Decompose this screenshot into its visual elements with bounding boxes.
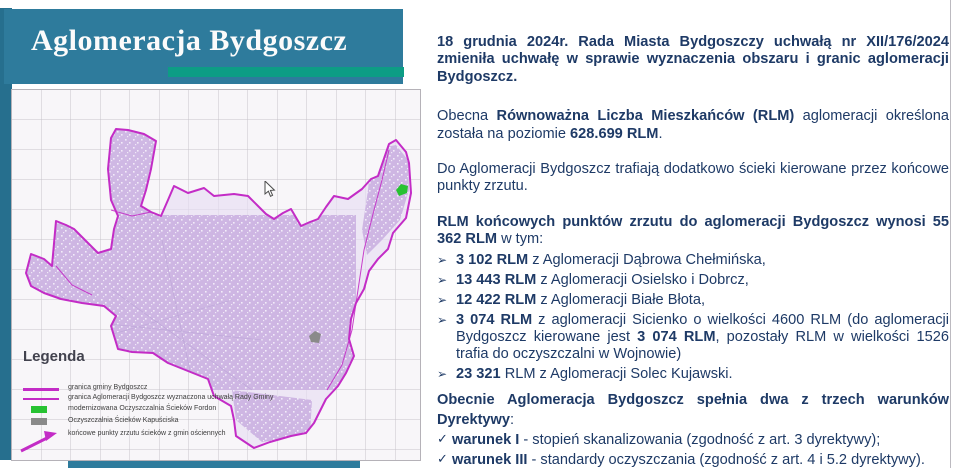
green-rect-swatch: [31, 406, 47, 413]
paragraph-rlm: Obecna Równoważna Liczba Mieszkańców (RL…: [437, 108, 949, 143]
green-accent-bar: [168, 67, 404, 77]
directive-conditions: Obecnie Aglomeracja Bydgoszcz spełnia dw…: [437, 390, 949, 468]
list-item: ➢ 3 074 RLM z aglomeracji Sicienko o wie…: [437, 312, 949, 363]
thin-line-swatch: [23, 398, 59, 400]
arrow-bullet-icon: ➢: [437, 312, 456, 363]
content-column: 18 grudnia 2024r. Rada Miasta Bydgoszczy…: [437, 0, 949, 468]
legend-title: Legenda: [23, 348, 85, 365]
gray-rect-swatch: [31, 418, 47, 425]
arrow-bullet-icon: ➢: [437, 366, 456, 383]
list-item: ➢ 13 443 RLM z Aglomeracji Osielsko i Do…: [437, 272, 949, 289]
paragraph-resolution: 18 grudnia 2024r. Rada Miasta Bydgoszczy…: [437, 34, 949, 86]
checkmark-icon: ✓: [437, 430, 452, 451]
right-edge-line: [950, 0, 951, 468]
map-panel: Legenda granica gminy Bydgoszcz granica …: [11, 89, 421, 461]
arrow-swatch-icon: [17, 428, 61, 454]
list-item: ➢ 12 422 RLM z Aglomeracji Białe Błota,: [437, 292, 949, 309]
condition-item: ✓ warunek I - stopień skanalizowania (zg…: [437, 430, 949, 451]
arrow-bullet-icon: ➢: [437, 252, 456, 269]
title-banner: Aglomeracja Bydgoszcz: [4, 9, 403, 84]
arrow-bullet-icon: ➢: [437, 292, 456, 309]
list-item: ➢ 3 102 RLM z Aglomeracji Dąbrowa Chełmi…: [437, 252, 949, 269]
condition-item: ✓ warunek III - standardy oczyszczania (…: [437, 450, 949, 468]
list-item: ➢ 23 321 RLM z Aglomeracji Solec Kujawsk…: [437, 366, 949, 383]
page-title: Aglomeracja Bydgoszcz: [4, 9, 403, 58]
thick-line-swatch: [23, 388, 59, 391]
arrow-bullet-icon: ➢: [437, 272, 456, 289]
paragraph-discharge: Do Aglomeracji Bydgoszcz trafiają dodatk…: [437, 161, 949, 196]
bottom-accent-bar: [68, 461, 360, 468]
presentation-slide: Aglomeracja Bydgoszcz: [0, 0, 964, 468]
checkmark-icon: ✓: [437, 450, 452, 468]
conditions-header: Obecnie Aglomeracja Bydgoszcz spełnia dw…: [437, 390, 949, 430]
drop-points-list: ➢ 3 102 RLM z Aglomeracji Dąbrowa Chełmi…: [437, 252, 949, 383]
mouse-cursor-icon: [264, 181, 276, 198]
paragraph-drop-points-intro: RLM końcowych punktów zrzutu do aglomera…: [437, 214, 949, 249]
